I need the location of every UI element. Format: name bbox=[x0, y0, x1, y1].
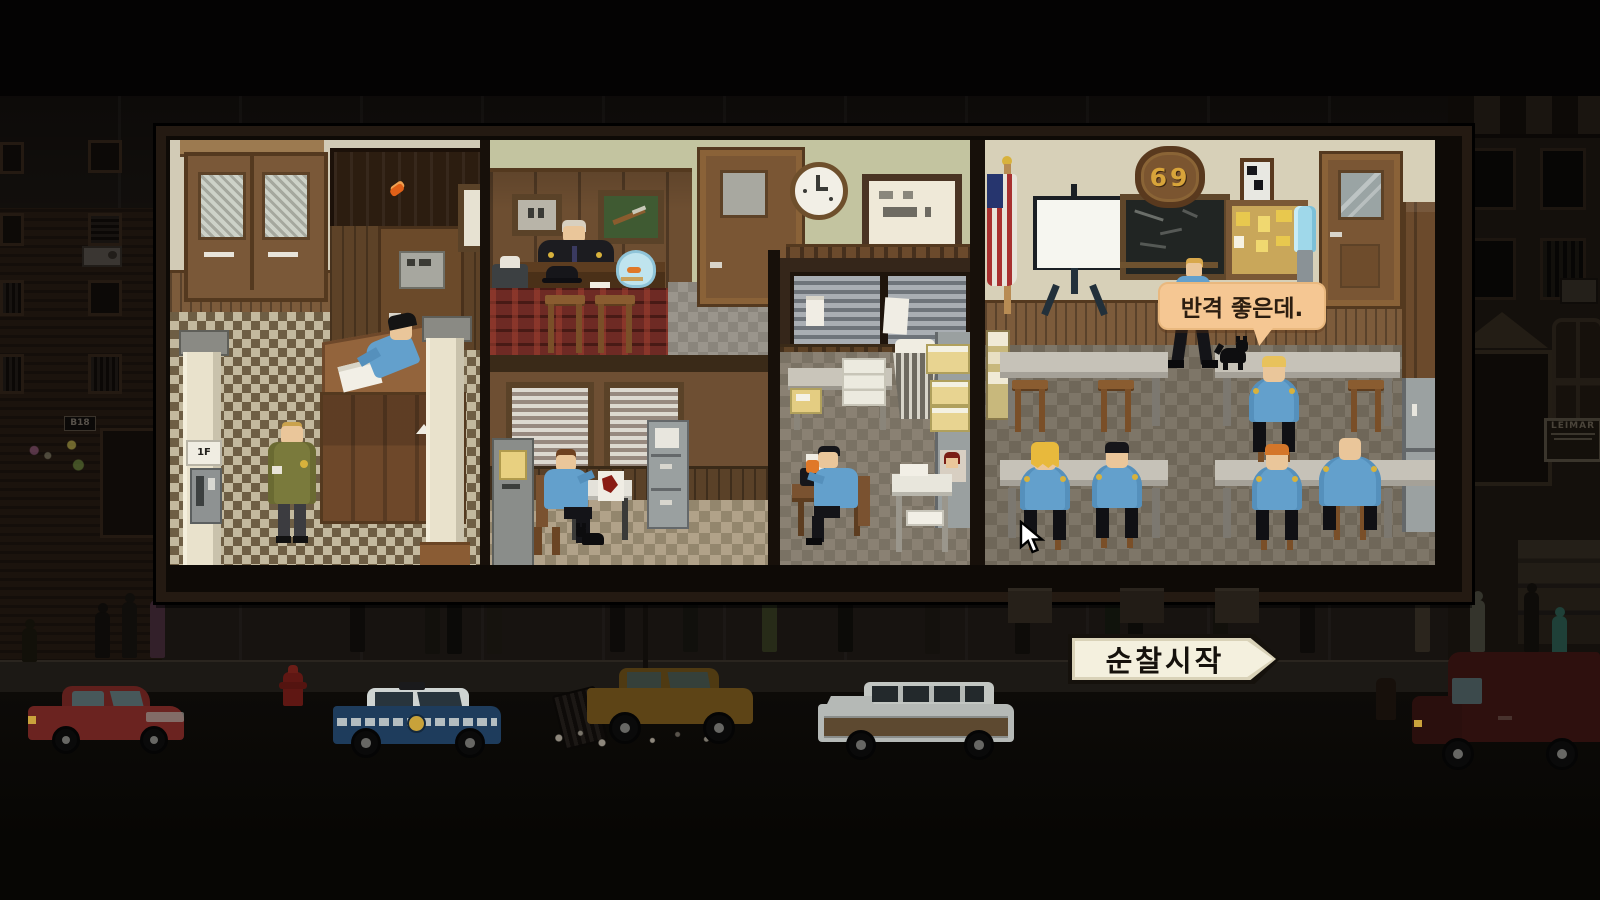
door-window bbox=[720, 170, 768, 218]
room-detective-office bbox=[490, 355, 768, 565]
tenement-building: B18 bbox=[0, 208, 162, 662]
pedestrian bbox=[1552, 616, 1567, 656]
pedestrian bbox=[95, 612, 110, 658]
pedestrian bbox=[762, 594, 777, 652]
pedestrian bbox=[1470, 600, 1485, 652]
pedestrian bbox=[487, 602, 502, 654]
fishbowl bbox=[616, 250, 656, 288]
speech-bubble: 반격 좋은데. bbox=[1158, 282, 1326, 330]
wall-frame bbox=[458, 184, 480, 252]
sky bbox=[0, 0, 1600, 96]
pedestrian bbox=[1415, 594, 1430, 652]
tenement-window bbox=[88, 213, 122, 246]
black-cat[interactable] bbox=[576, 527, 606, 547]
desk-sergeant[interactable] bbox=[332, 318, 422, 408]
pedestrian bbox=[425, 596, 440, 654]
pinned-paper bbox=[806, 296, 824, 326]
red-map[interactable] bbox=[598, 471, 624, 501]
wall-sign bbox=[1560, 278, 1598, 304]
wall-divider bbox=[768, 250, 780, 565]
court-window bbox=[1540, 148, 1586, 210]
tenement-window bbox=[88, 354, 122, 394]
tenement-door bbox=[100, 428, 164, 538]
tenement-window bbox=[0, 354, 24, 394]
room-storage bbox=[780, 258, 970, 565]
pedestrian bbox=[925, 600, 940, 654]
typist-officer[interactable] bbox=[806, 444, 872, 554]
briefing-stool bbox=[1012, 380, 1048, 432]
car-maroon-van bbox=[1412, 652, 1600, 764]
street bbox=[0, 692, 1600, 900]
yellow-box bbox=[790, 388, 822, 414]
fire-hydrant-dark bbox=[1376, 678, 1396, 720]
gold-button bbox=[596, 252, 602, 258]
vending-machine[interactable] bbox=[492, 438, 534, 565]
police-dog[interactable] bbox=[1216, 340, 1250, 370]
column bbox=[426, 338, 464, 565]
certificate-frame bbox=[862, 174, 962, 252]
wall-divider bbox=[480, 140, 490, 565]
game-scene: B18 LEIMAR bbox=[0, 0, 1600, 900]
filing-cabinet-stack[interactable] bbox=[647, 420, 689, 529]
briefing-door[interactable] bbox=[1322, 154, 1400, 306]
water-cooler[interactable] bbox=[1293, 206, 1319, 288]
basement-window bbox=[1215, 588, 1259, 623]
pedestrian bbox=[447, 600, 462, 654]
court-window bbox=[1470, 238, 1516, 300]
basement-window bbox=[1120, 588, 1164, 623]
gold-button bbox=[548, 252, 554, 258]
patrol-button[interactable]: 순찰시작 bbox=[1068, 634, 1280, 684]
graffiti bbox=[58, 430, 92, 480]
payphone-sign: 1F bbox=[186, 440, 222, 466]
pedestrian bbox=[1524, 592, 1539, 652]
tenement-window bbox=[0, 280, 24, 316]
office-stool bbox=[545, 295, 585, 353]
pedestrian bbox=[150, 600, 165, 658]
tenement-window bbox=[88, 140, 122, 173]
room-lobby: 1F bbox=[170, 140, 480, 565]
speech-text: 반격 좋은데. bbox=[1181, 289, 1304, 323]
leimar-sign: LEIMAR bbox=[1544, 418, 1600, 462]
seated-officer[interactable] bbox=[1318, 430, 1382, 540]
payphone[interactable] bbox=[190, 468, 222, 524]
towel-stack bbox=[842, 358, 886, 406]
fire-hydrant bbox=[283, 672, 303, 706]
precinct-plaque: 69 bbox=[1135, 146, 1205, 208]
office-stool bbox=[595, 295, 635, 353]
court-window bbox=[1470, 148, 1516, 210]
pinned-paper bbox=[883, 297, 909, 335]
car-police-cruiser bbox=[333, 682, 503, 756]
column-base bbox=[420, 542, 470, 565]
briefing-stool bbox=[1348, 380, 1384, 432]
spark bbox=[389, 183, 405, 198]
entrance-garage bbox=[1458, 350, 1552, 486]
lt-plaque bbox=[399, 251, 445, 289]
graffiti bbox=[24, 440, 58, 466]
door-window bbox=[1338, 170, 1384, 220]
tenement-window bbox=[88, 280, 122, 316]
door-handle bbox=[268, 252, 298, 257]
precinct-number: 69 bbox=[1150, 163, 1191, 192]
seated-officer[interactable] bbox=[1250, 440, 1304, 550]
ac-unit bbox=[82, 246, 122, 267]
wall-clock bbox=[790, 162, 848, 220]
door-handle bbox=[204, 252, 234, 257]
car-abandoned-sedan bbox=[587, 668, 755, 744]
patrol-button-label: 순찰시작 bbox=[1106, 638, 1243, 680]
flag-cloth bbox=[987, 174, 1017, 286]
leimar-sign-text: LEIMAR bbox=[1551, 421, 1595, 431]
seated-officer[interactable] bbox=[1090, 438, 1144, 548]
white-table bbox=[892, 474, 954, 556]
civilian-green-jacket[interactable] bbox=[268, 422, 316, 544]
tenement-window bbox=[0, 142, 24, 174]
building-number-sign: B18 bbox=[64, 416, 96, 431]
badge bbox=[300, 460, 308, 468]
police-lightbar bbox=[399, 682, 425, 690]
gray-locker[interactable] bbox=[1402, 378, 1435, 532]
projection-screen[interactable] bbox=[1033, 196, 1121, 316]
small-photo-frame bbox=[1240, 158, 1274, 204]
car-station-wagon bbox=[818, 682, 1016, 756]
entrance-double-door[interactable] bbox=[184, 152, 328, 302]
wall-divider bbox=[970, 140, 985, 565]
police-badge-decal bbox=[407, 714, 426, 733]
pedestrian bbox=[122, 602, 137, 658]
american-flag bbox=[987, 160, 1029, 318]
door-window bbox=[198, 172, 246, 240]
briefing-stool bbox=[1098, 380, 1134, 432]
pedestrian bbox=[683, 596, 698, 652]
pedestrian bbox=[1300, 598, 1315, 653]
wood-cabinet[interactable] bbox=[1402, 202, 1435, 378]
mouse-cursor bbox=[1018, 520, 1046, 554]
car-red-hatchback bbox=[28, 686, 186, 754]
police-hat bbox=[546, 266, 578, 282]
tenement-window bbox=[0, 213, 24, 246]
pedestrian bbox=[22, 628, 37, 662]
slat-window bbox=[790, 272, 884, 352]
door-window bbox=[262, 172, 310, 240]
basement-window bbox=[1008, 588, 1052, 623]
